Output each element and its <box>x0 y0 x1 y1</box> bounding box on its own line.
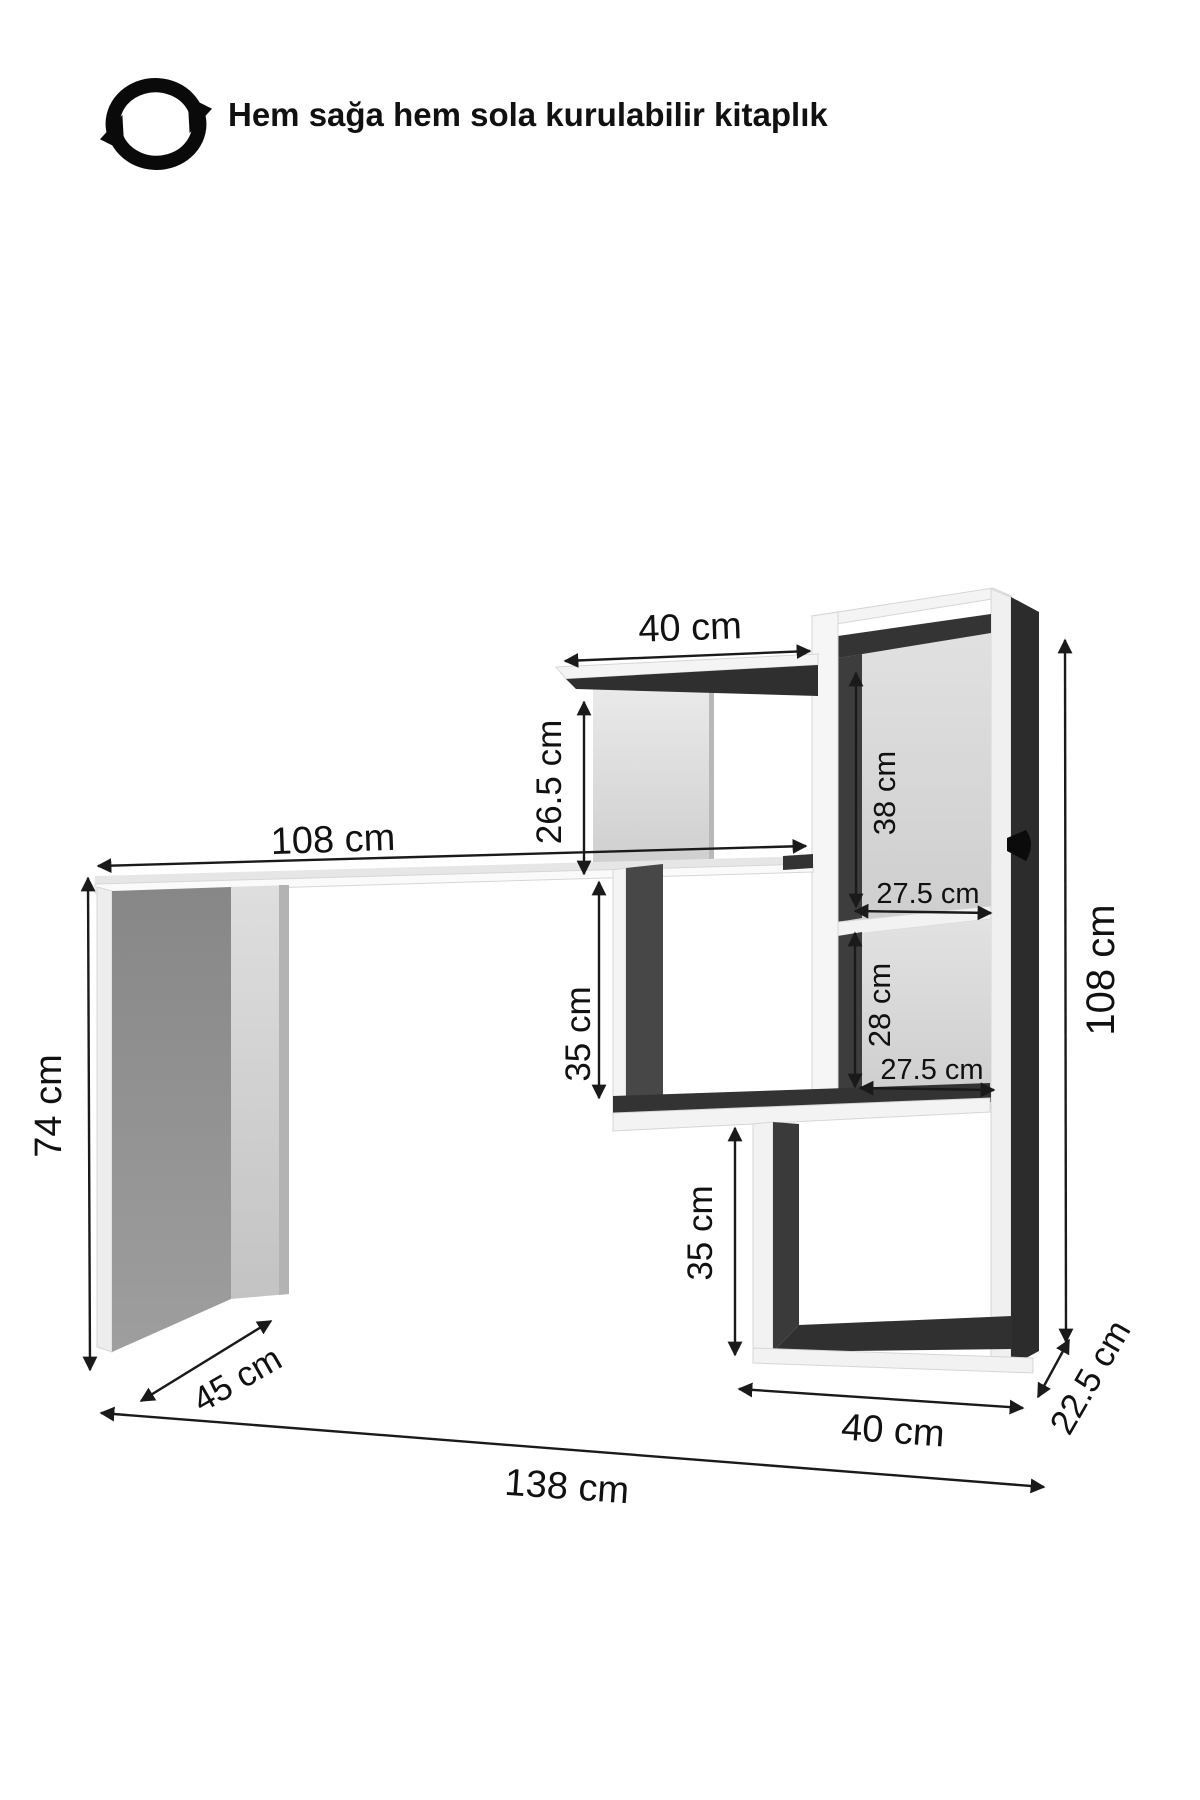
cabinet-interior-left-shadow-upper <box>838 654 862 922</box>
dim-label-top-shelf-width: 40 cm <box>638 605 743 651</box>
dim-label-desk-width: 108 cm <box>270 817 396 863</box>
middle-divider-side-face <box>626 864 663 1103</box>
desk-leg-back-edge <box>279 885 289 1295</box>
cabinet-right-side-panel <box>1011 597 1039 1366</box>
dim-label-middle-compartment-height: 35 cm <box>559 986 598 1081</box>
dim-label-upper-compartment-height: 38 cm <box>867 751 902 835</box>
cabinet-interior-left-shadow-lower <box>838 932 862 1098</box>
bottom-box-left-side-face <box>773 1122 799 1352</box>
dim-label-lower-compartment-height: 28 cm <box>862 963 897 1047</box>
top-shelf-support-edge <box>709 679 714 860</box>
desk-cabinet-joint <box>783 854 813 870</box>
dim-arrow-bottom-shelf-width <box>739 1389 1023 1408</box>
middle-divider-front-edge <box>613 868 626 1113</box>
dim-label-desk-height: 74 cm <box>28 1054 70 1157</box>
dim-arrow-desk-height <box>88 878 90 1370</box>
furniture-diagram: 40 cm 26.5 cm 108 cm 38 cm 27.5 cm 74 cm… <box>0 0 1200 1800</box>
bookshelf-cabinet <box>812 588 1039 1372</box>
dim-label-bottom-compartment-height: 35 cm <box>681 1185 720 1280</box>
dim-label-bottom-shelf-width: 40 cm <box>840 1406 946 1455</box>
dim-label-desk-depth: 45 cm <box>186 1339 288 1420</box>
dim-label-top-shelf-to-desk-gap: 26.5 cm <box>530 720 569 845</box>
desk-leg-front-edge <box>97 887 112 1352</box>
bottom-box-left-edge <box>753 1122 773 1352</box>
dim-label-upper-compartment-width: 27.5 cm <box>876 878 979 910</box>
cabinet-right-edge <box>991 589 1011 1372</box>
dim-label-bookshelf-depth: 22.5 cm <box>1042 1314 1138 1441</box>
desk-leg-side-panel <box>112 887 231 1352</box>
top-shelf <box>556 654 818 864</box>
dim-label-total-width: 138 cm <box>503 1462 630 1513</box>
dim-label-total-height: 108 cm <box>1079 904 1123 1035</box>
bottom-box-inner-bottom <box>773 1316 1012 1352</box>
dim-label-lower-compartment-width: 27.5 cm <box>880 1054 983 1086</box>
top-shelf-support-panel <box>593 679 714 864</box>
page: Hem sağa hem sola kurulabilir kitaplık <box>0 0 1200 1800</box>
dim-arrow-total-height <box>1065 640 1066 1342</box>
